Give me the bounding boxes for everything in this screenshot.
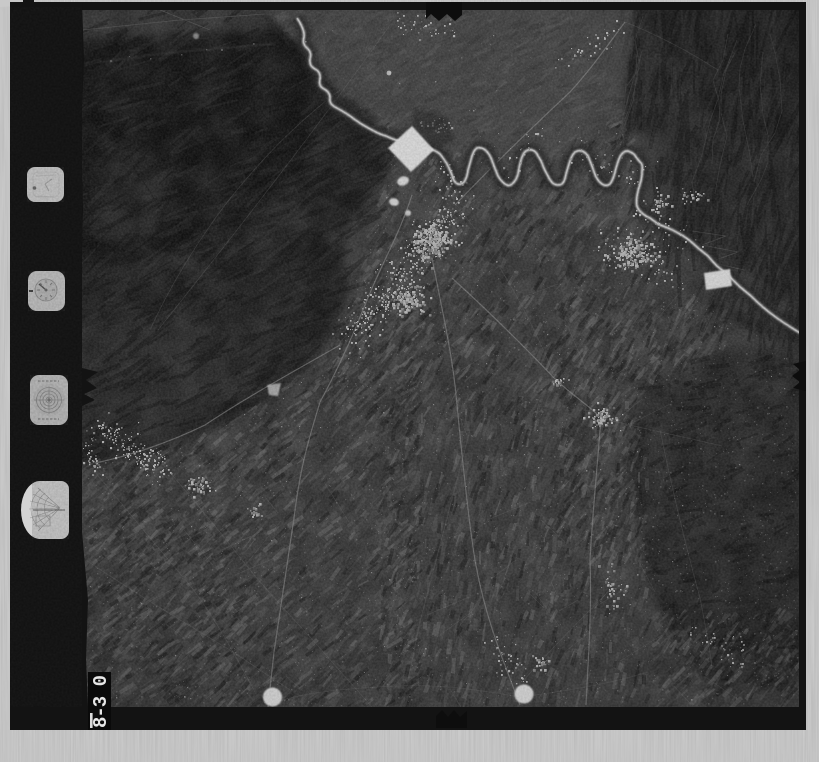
svg-text:8-3 0: 8-3 0 bbox=[90, 675, 112, 728]
